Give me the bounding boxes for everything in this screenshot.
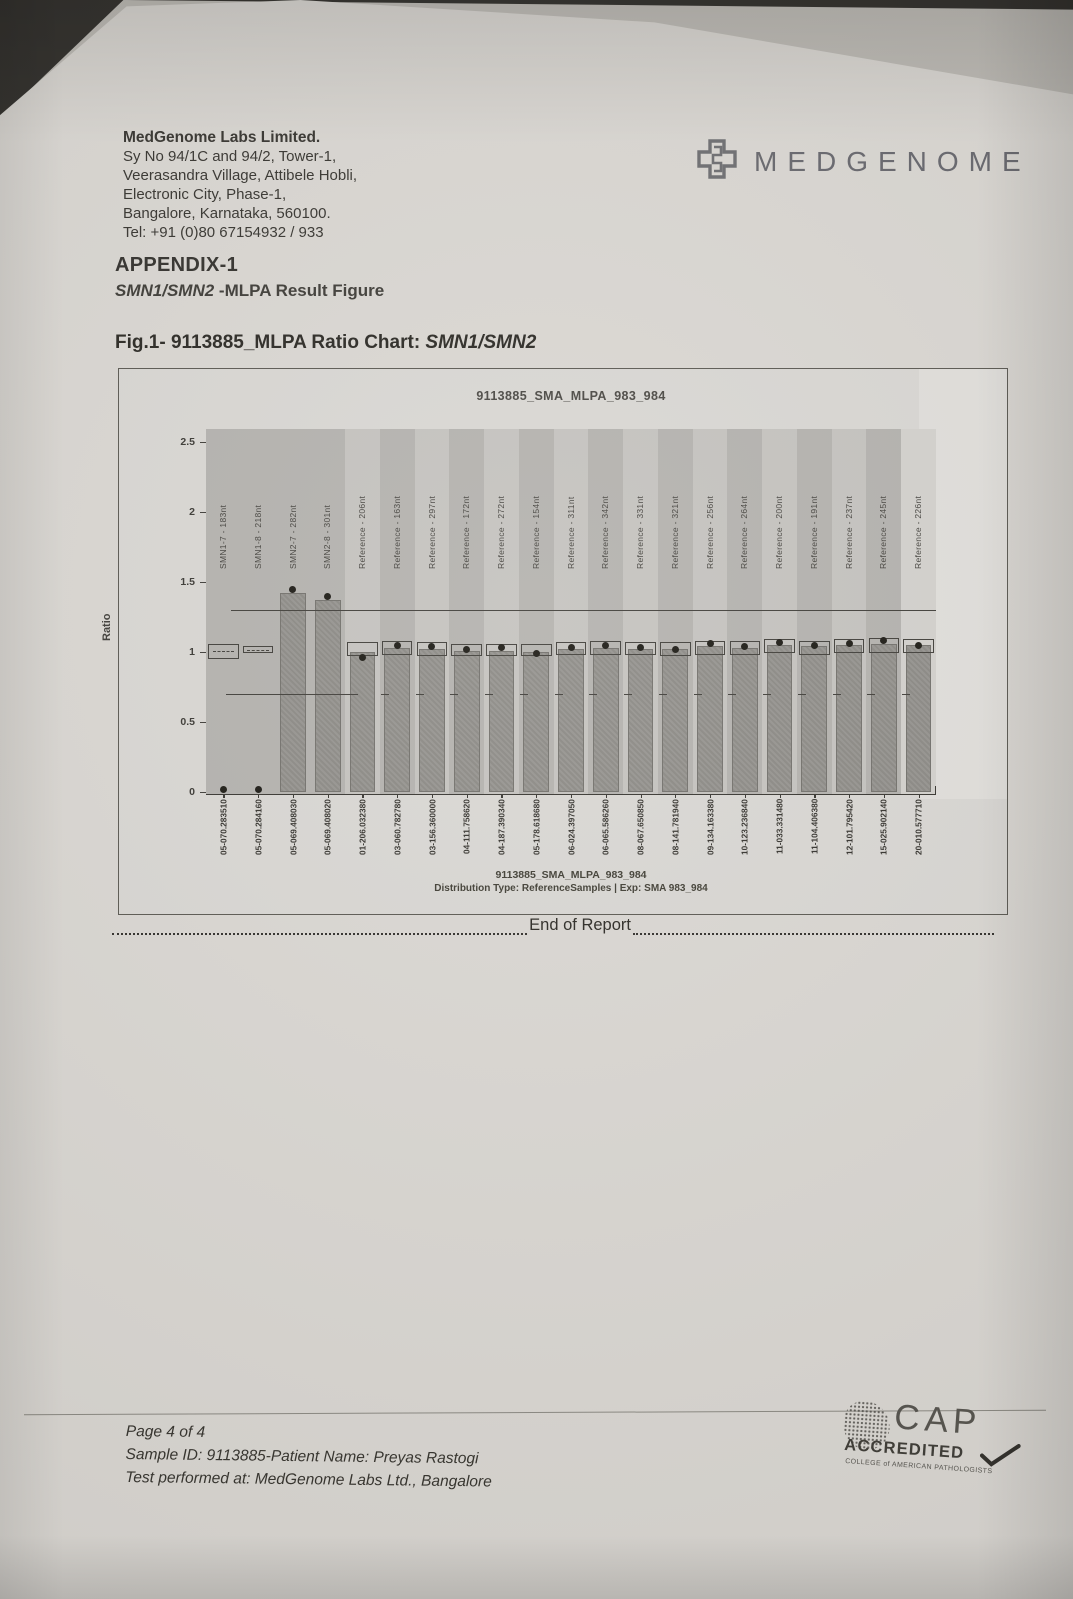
sample-ratio-dot [255, 786, 262, 793]
lower-range-tick [589, 694, 597, 695]
address-line: Sy No 94/1C and 94/2, Tower-1, [123, 147, 357, 166]
ratio-bar [628, 649, 654, 792]
address-line: Bangalore, Karnataka, 560100. [123, 204, 357, 223]
probe-label: Reference - 264nt [727, 441, 762, 569]
sample-ratio-dot [672, 646, 679, 653]
ratio-bar [350, 652, 376, 792]
lower-range-tick [902, 694, 910, 695]
x-axis-tick [606, 794, 607, 798]
y-axis-tick-label: 1.5 [180, 576, 195, 588]
probe-label: SMN2-8 - 301nt [310, 441, 345, 569]
sample-id-label: 09-134.163380 [693, 799, 728, 867]
lower-range-tick [555, 694, 563, 695]
x-axis-tick [919, 794, 920, 798]
appendix-subtitle: SMN1/SMN2 -MLPA Result Figure [115, 281, 384, 301]
sample-ratio-dot [568, 644, 575, 651]
y-axis-tick-label: 2 [189, 506, 195, 518]
probe-label: Reference - 226nt [901, 441, 936, 569]
sample-id-label: 20-010.577710 [901, 799, 936, 867]
sample-ratio-dot [289, 586, 296, 593]
ratio-bar [419, 649, 445, 792]
subtitle-rest: -MLPA Result Figure [214, 281, 384, 300]
cap-text: CAP [893, 1397, 983, 1443]
lower-range-tick [485, 694, 493, 695]
probe-label: SMN2-7 - 282nt [276, 441, 311, 569]
x-axis-tick [780, 794, 781, 798]
probe-label: Reference - 321nt [658, 441, 693, 569]
x-axis-tick [328, 794, 329, 798]
lab-address-block: MedGenome Labs Limited. Sy No 94/1C and … [123, 128, 357, 242]
ratio-bar [662, 649, 688, 792]
sample-id-label: 05-070.284160 [241, 799, 276, 867]
sample-ratio-dot [533, 650, 540, 657]
lower-range-tick [728, 694, 736, 695]
address-line: Electronic City, Phase-1, [123, 185, 357, 204]
upper-reference-line [231, 610, 936, 611]
medgenome-logo: MEDGENOME [694, 136, 1031, 187]
sample-id-label: 03-060.782780 [380, 799, 415, 867]
x-axis-tick [293, 794, 294, 798]
x-axis-tick [571, 794, 572, 798]
x-axis-tick [223, 794, 224, 798]
probe-label: Reference - 342nt [588, 441, 623, 569]
range-box-dash [247, 650, 269, 651]
cap-accredited-stamp: CAP ACCREDITED COLLEGE of AMERICAN PATHO… [838, 1392, 1025, 1514]
x-axis-tick [432, 794, 433, 798]
lower-range-tick [694, 694, 702, 695]
test-performed-line: Test performed at: MedGenome Labs Ltd., … [125, 1466, 492, 1493]
x-axis-tick [745, 794, 746, 798]
end-of-report-row: End of Report [112, 916, 994, 935]
lower-range-tick [416, 694, 424, 695]
sample-id-label: 05-069.408020 [310, 799, 345, 867]
y-axis: 2.521.510.50 [161, 429, 207, 794]
x-axis-tick [258, 794, 259, 798]
lower-range-tick [624, 694, 632, 695]
x-labels: 05-070.28351005-070.28416005-069.4080300… [206, 799, 936, 867]
y-axis-tick-label: 2.5 [180, 436, 195, 448]
probe-label: SMN1-7 - 183nt [206, 441, 241, 569]
ratio-bar [767, 645, 793, 792]
lower-range-tick [833, 694, 841, 695]
lower-range-tick [659, 694, 667, 695]
sample-id-label: 01-206.032380 [345, 799, 380, 867]
ratio-bar [280, 593, 306, 792]
probe-label: Reference - 163nt [380, 441, 415, 569]
sample-id-label: 04-187.390340 [484, 799, 519, 867]
gene-name: SMN1/SMN2 [115, 281, 214, 300]
sample-id-label: 05-070.283510 [206, 799, 241, 867]
sample-ratio-dot [394, 642, 401, 649]
ratio-bar [697, 646, 723, 792]
sample-id-label: 08-067.650850 [623, 799, 658, 867]
x-axis-tick [501, 794, 502, 798]
probe-label: Reference - 172nt [449, 441, 484, 569]
lower-range-tick [867, 694, 875, 695]
x-axis-tick [675, 794, 676, 798]
reference-range-box [208, 644, 239, 659]
reference-range-box [243, 646, 274, 653]
x-axis-tick [641, 794, 642, 798]
sample-ratio-dot [846, 640, 853, 647]
y-axis-tick-label: 0 [189, 786, 195, 798]
x-axis-tick [536, 794, 537, 798]
sample-ratio-dot [463, 646, 470, 653]
lower-range-tick [381, 694, 389, 695]
sample-id-label: 11-033.331480 [762, 799, 797, 867]
ratio-bar [801, 646, 827, 792]
x-axis-tick [849, 794, 850, 798]
sample-ratio-dot [324, 593, 331, 600]
chart-title: 9113885_SMA_MLPA_983_984 [206, 389, 936, 403]
ratio-bar [315, 600, 341, 792]
ratio-bar [906, 645, 932, 792]
sample-id-label: 05-069.408030 [276, 799, 311, 867]
appendix-title: APPENDIX-1 [115, 254, 384, 277]
sample-id-label: 12-101.795420 [832, 799, 867, 867]
sample-ratio-dot [811, 642, 818, 649]
scanned-page: MedGenome Labs Limited. Sy No 94/1C and … [0, 0, 1073, 1599]
probe-label: Reference - 311nt [554, 441, 589, 569]
x-axis-tick [814, 794, 815, 798]
probe-label: Reference - 154nt [519, 441, 554, 569]
figure-box: 9113885_SMA_MLPA_983_984 Ratio 2.521.510… [118, 368, 1008, 915]
x-axis-tick [884, 794, 885, 798]
sample-id-label: 06-024.397050 [554, 799, 589, 867]
sample-ratio-dot [602, 642, 609, 649]
probe-label: Reference - 237nt [832, 441, 867, 569]
ratio-bar [593, 648, 619, 792]
ratio-bar [558, 649, 584, 792]
lower-reference-line [226, 694, 358, 695]
ratio-bar [732, 648, 758, 792]
chart-caption-line2: Distribution Type: ReferenceSamples | Ex… [206, 883, 936, 894]
sample-id-label: 15-025.902140 [866, 799, 901, 867]
probe-label: Reference - 256nt [693, 441, 728, 569]
sample-id-label: 06-065.586260 [588, 799, 623, 867]
probe-label: SMN1-8 - 218nt [241, 441, 276, 569]
sample-ratio-dot [359, 654, 366, 661]
x-axis-tick [710, 794, 711, 798]
x-axis-tick [397, 794, 398, 798]
sample-id-label: 10-123.236840 [727, 799, 762, 867]
figure-caption-gene: SMN1/SMN2 [425, 332, 536, 353]
footer-block: Page 4 of 4 Sample ID: 9113885-Patient N… [125, 1420, 492, 1493]
medgenome-cross-icon [694, 136, 740, 187]
medgenome-wordmark: MEDGENOME [754, 146, 1031, 178]
dotted-leader-left [112, 919, 527, 935]
ratio-bar [454, 651, 480, 792]
lower-range-tick [520, 694, 528, 695]
sample-ratio-dot [220, 786, 227, 793]
range-box-dash [213, 651, 235, 652]
probe-label: Reference - 297nt [415, 441, 450, 569]
lower-range-tick [798, 694, 806, 695]
probe-label: Reference - 191nt [797, 441, 832, 569]
lab-name: MedGenome Labs Limited. [123, 128, 357, 147]
probe-label: Reference - 245nt [866, 441, 901, 569]
sample-id-label: 04-111.758620 [449, 799, 484, 867]
probe-label: Reference - 206nt [345, 441, 380, 569]
sample-ratio-dot [707, 640, 714, 647]
appendix-heading-block: APPENDIX-1 SMN1/SMN2 -MLPA Result Figure [115, 254, 384, 301]
y-axis-tick-label: 1 [189, 646, 195, 658]
figure-caption-prefix: Fig.1- 9113885_MLPA Ratio Chart: [115, 332, 425, 353]
x-axis-tick [362, 794, 363, 798]
end-of-report-label: End of Report [527, 916, 633, 935]
cap-college-text: COLLEGE of AMERICAN PATHOLOGISTS [845, 1458, 993, 1475]
probe-label: Reference - 331nt [623, 441, 658, 569]
address-line: Veerasandra Village, Attibele Hobli, [123, 166, 357, 185]
x-axis-end-tick [935, 786, 936, 794]
chart-caption-line1: 9113885_SMA_MLPA_983_984 [206, 869, 936, 881]
ratio-bar [871, 644, 897, 792]
ratio-bar [523, 652, 549, 792]
plot-area: SMN1-7 - 183ntSMN1-8 - 218ntSMN2-7 - 282… [206, 429, 936, 795]
dotted-leader-right [633, 919, 994, 935]
sample-id-label: 03-156.360000 [415, 799, 450, 867]
sample-id-label: 11-104.406380 [797, 799, 832, 867]
sample-ratio-dot [915, 642, 922, 649]
lower-range-tick [763, 694, 771, 695]
ratio-bar [836, 645, 862, 792]
y-axis-tick-label: 0.5 [180, 716, 195, 728]
x-axis-tick [467, 794, 468, 798]
sample-id-label: 05-178.618680 [519, 799, 554, 867]
probe-label: Reference - 200nt [762, 441, 797, 569]
sample-ratio-dot [776, 639, 783, 646]
ratio-bar [489, 651, 515, 792]
ratio-bar [384, 648, 410, 792]
figure-caption: Fig.1- 9113885_MLPA Ratio Chart: SMN1/SM… [115, 332, 536, 354]
probe-label: Reference - 272nt [484, 441, 519, 569]
sample-id-label: 08-141.781940 [658, 799, 693, 867]
phone-line: Tel: +91 (0)80 67154932 / 933 [123, 223, 357, 242]
lower-range-tick [450, 694, 458, 695]
